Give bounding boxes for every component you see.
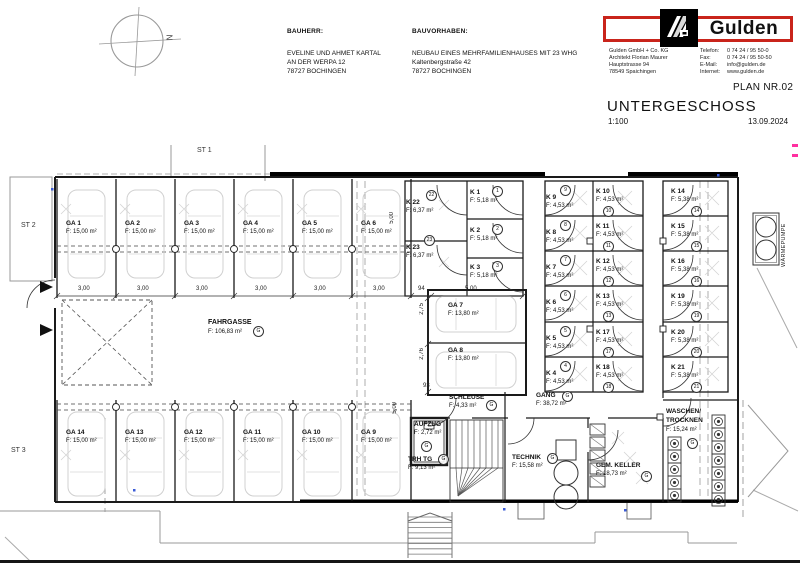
room-label-ga6: GA 6F: 15,00 m² xyxy=(361,219,392,237)
g-badge-trhtg: G xyxy=(438,454,449,465)
north-label: N xyxy=(164,35,173,41)
room-label-k16: K 16F: 5,38 m² xyxy=(671,257,698,275)
site-lines xyxy=(0,145,798,561)
room-label-ga13: GA 13F: 15,00 m² xyxy=(125,428,156,446)
room-label-gemkeller: GEM. KELLERF: 18,73 m² xyxy=(596,461,640,479)
room-label-k15: K 15F: 5,38 m² xyxy=(671,222,698,240)
room-number-badge-k6: 6 xyxy=(560,290,571,301)
dim-label-300-6: 3,00 xyxy=(373,286,385,292)
room-number-badge-k13: 13 xyxy=(603,311,614,322)
dim-label-300-3: 3,00 xyxy=(196,286,208,292)
plan-scale: 1:100 xyxy=(608,117,628,126)
site-label-st2: ST 2 xyxy=(21,222,36,229)
room-number-badge-k20: 20 xyxy=(691,347,702,358)
room-label-k5: K 5F: 4,53 m² xyxy=(546,334,573,352)
bauvorhaben-line3: 78727 BOCHINGEN xyxy=(412,68,471,76)
internal-stair xyxy=(450,420,503,502)
dim-label-275: 2,75 xyxy=(419,303,425,315)
dim-label-300-2: 3,00 xyxy=(137,286,149,292)
room-label-k17: K 17F: 4,53 m² xyxy=(596,328,623,346)
firm-city: 78549 Spaichingen xyxy=(609,69,656,76)
room-number-badge-k21: 21 xyxy=(691,382,702,393)
room-number-badge-k12: 12 xyxy=(603,276,614,287)
room-label-k4: K 4F: 4,53 m² xyxy=(546,369,573,387)
bauherr-label: BAUHERR: xyxy=(287,28,323,35)
dim-label-276: 2,76 xyxy=(419,348,425,360)
bauvorhaben-line2: Kaltenbergstraße 42 xyxy=(412,59,471,67)
room-number-badge-k23: 23 xyxy=(424,235,435,246)
room-number-badge-k8: 8 xyxy=(560,220,571,231)
room-label-k11: K 11F: 4,53 m² xyxy=(596,222,623,240)
room-label-k13: K 13F: 4,53 m² xyxy=(596,292,623,310)
room-number-badge-k2: 2 xyxy=(492,224,503,235)
room-label-ga5: GA 5F: 15,00 m² xyxy=(302,219,333,237)
room-label-technik: TECHNIKF: 15,58 m² xyxy=(512,453,543,471)
dim-label-500-ga9: 5,00 xyxy=(392,402,398,414)
room-number-badge-k3: 3 xyxy=(492,261,503,272)
room-label-ga11: GA 11F: 15,00 m² xyxy=(243,428,274,446)
room-label-k14: K 14F: 5,38 m² xyxy=(671,187,698,205)
room-number-badge-k22: 22 xyxy=(426,190,437,201)
floor-plan-drawing xyxy=(0,0,800,565)
room-label-k18: K 18F: 4,53 m² xyxy=(596,363,623,381)
g-badge-fahrgasse: G xyxy=(253,326,264,337)
g-badge-technik: G xyxy=(547,453,558,464)
room-label-ga2: GA 2F: 15,00 m² xyxy=(125,219,156,237)
dim-label-500-ga7: 5,00 xyxy=(465,286,477,292)
entry-arrow-icons xyxy=(40,281,53,336)
dim-label-300-4: 3,00 xyxy=(255,286,267,292)
north-arrow-icon xyxy=(99,7,181,76)
bauherr-city: 78727 BOCHINGEN xyxy=(287,68,346,76)
logo-left-bar xyxy=(603,16,663,42)
gulden-logo-icon xyxy=(660,9,698,52)
g-badge-gang: G xyxy=(562,391,573,402)
exterior-stair xyxy=(408,512,452,558)
room-number-badge-k11: 11 xyxy=(603,241,614,252)
room-number-badge-k7: 7 xyxy=(560,255,571,266)
dim-label-300-5: 3,00 xyxy=(314,286,326,292)
room-label-k6: K 6F: 4,53 m² xyxy=(546,298,573,316)
g-badge-aufzug: G xyxy=(421,441,432,452)
g-badge-waschen: G xyxy=(687,438,698,449)
web-label: Internet: xyxy=(700,69,720,76)
room-label-k12: K 12F: 4,53 m² xyxy=(596,257,623,275)
room-label-ga4: GA 4F: 15,00 m² xyxy=(243,219,274,237)
room-number-badge-k14: 14 xyxy=(691,206,702,217)
room-number-badge-k10: 10 xyxy=(603,206,614,217)
room-number-badge-k19: 19 xyxy=(691,311,702,322)
shaft-cross-box xyxy=(62,300,152,385)
room-label-k21: K 21F: 5,38 m² xyxy=(671,363,698,381)
room-label-ga3: GA 3F: 15,00 m² xyxy=(184,219,215,237)
room-label-ga7: GA 7F: 13,80 m² xyxy=(448,301,479,319)
logo-wordmark: Gulden xyxy=(698,19,790,39)
room-label-ga12: GA 12F: 15,00 m² xyxy=(184,428,215,446)
room-label-waschen: WASCHEN/TROCKNENF: 15,24 m² xyxy=(666,407,703,435)
room-label-k7: K 7F: 4,53 m² xyxy=(546,263,573,281)
technik-equipment xyxy=(554,440,578,509)
room-label-k10: K 10F: 4,53 m² xyxy=(596,187,623,205)
g-badge-gemkeller: G xyxy=(641,471,652,482)
room-label-k9: K 9F: 4,53 m² xyxy=(546,193,573,211)
room-label-k19: K 19F: 5,38 m² xyxy=(671,292,698,310)
waermepumpe-label: WÄRMEPUMPE xyxy=(781,211,787,267)
dim-label-94: 94 xyxy=(418,286,425,292)
site-label-st3: ST 3 xyxy=(11,447,26,454)
dim-label-93: 93 xyxy=(423,383,430,389)
room-label-trhtg: TRH TGF: 9,13 m² xyxy=(408,455,435,473)
room-number-badge-k15: 15 xyxy=(691,241,702,252)
room-label-k8: K 8F: 4,53 m² xyxy=(546,228,573,246)
room-label-fahrgasse: FAHRGASSEF: 106,83 m² xyxy=(208,318,252,337)
dim-label-500-ga6: 5,00 xyxy=(389,212,395,224)
room-number-badge-k4: 4 xyxy=(560,361,571,372)
room-number-badge-k18: 18 xyxy=(603,382,614,393)
bauvorhaben-label: BAUVORHABEN: xyxy=(412,28,468,35)
logo-right-bar: Gulden xyxy=(695,16,793,42)
page-title: UNTERGESCHOSS xyxy=(607,98,757,115)
floor-plan-sheet: BAUHERR: EVELINE UND AHMET KARTAL AN DER… xyxy=(0,0,800,565)
bauherr-name: EVELINE UND AHMET KARTAL xyxy=(287,50,381,58)
site-label-st1: ST 1 xyxy=(197,147,212,154)
g-badge-schleuse: G xyxy=(486,400,497,411)
room-label-ga1: GA 1F: 15,00 m² xyxy=(66,219,97,237)
room-label-aufzug: AUFZUGF: 2,72 m² xyxy=(414,420,441,438)
web-value: www.gulden.de xyxy=(727,69,764,76)
heat-pump xyxy=(753,213,779,265)
sheet-bottom-border xyxy=(0,560,800,563)
room-label-schleuse: SCHLEUSEF: 4,33 m² xyxy=(449,393,484,411)
room-number-badge-k1: 1 xyxy=(492,186,503,197)
room-label-k20: K 20F: 5,38 m² xyxy=(671,328,698,346)
room-label-ga9: GA 9F: 15,00 m² xyxy=(361,428,392,446)
room-label-ga14: GA 14F: 15,00 m² xyxy=(66,428,97,446)
bauherr-street: AN DER WERPA 12 xyxy=(287,59,345,67)
bauvorhaben-line1: NEUBAU EINES MEHRFAMILIENHAUSES MIT 23 W… xyxy=(412,50,577,58)
dim-label-300-1: 3,00 xyxy=(78,286,90,292)
plan-number: PLAN NR.02 xyxy=(733,82,793,93)
room-number-badge-k16: 16 xyxy=(691,276,702,287)
plan-date: 13.09.2024 xyxy=(748,117,788,126)
room-label-ga10: GA 10F: 15,00 m² xyxy=(302,428,333,446)
room-label-ga8: GA 8F: 13,80 m² xyxy=(448,346,479,364)
room-number-badge-k5: 5 xyxy=(560,326,571,337)
room-number-badge-k17: 17 xyxy=(603,347,614,358)
room-number-badge-k9: 9 xyxy=(560,185,571,196)
